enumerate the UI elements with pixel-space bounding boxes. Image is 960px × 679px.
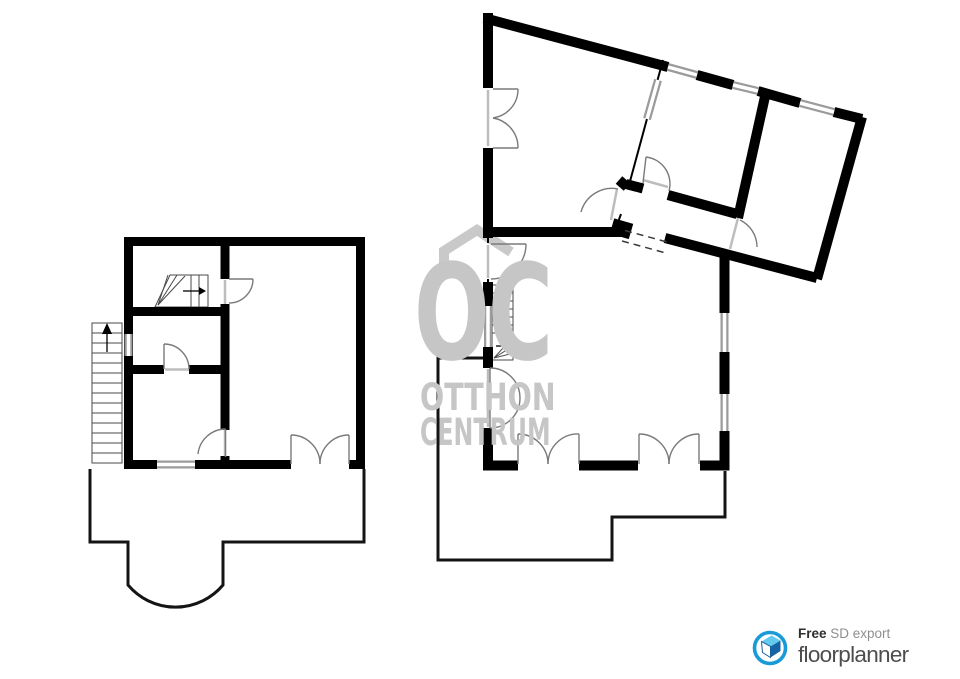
floorplanner-logo: Free SD export floorplanner (798, 626, 908, 667)
logo-brand-name: floorplanner (798, 643, 908, 667)
logo-free-label: Free (798, 626, 827, 641)
watermark-monogram: OC (414, 248, 551, 381)
logo-export-label: SD export (827, 626, 891, 641)
logo-tagline: Free SD export (798, 626, 908, 643)
floorplan-export-image: OC OTTHON CENTRUM Free SD export floorpl… (0, 0, 960, 679)
walls-left-plan (124, 237, 365, 469)
porch-outlines (90, 358, 725, 607)
watermark-line2: CENTRUM (420, 414, 551, 451)
